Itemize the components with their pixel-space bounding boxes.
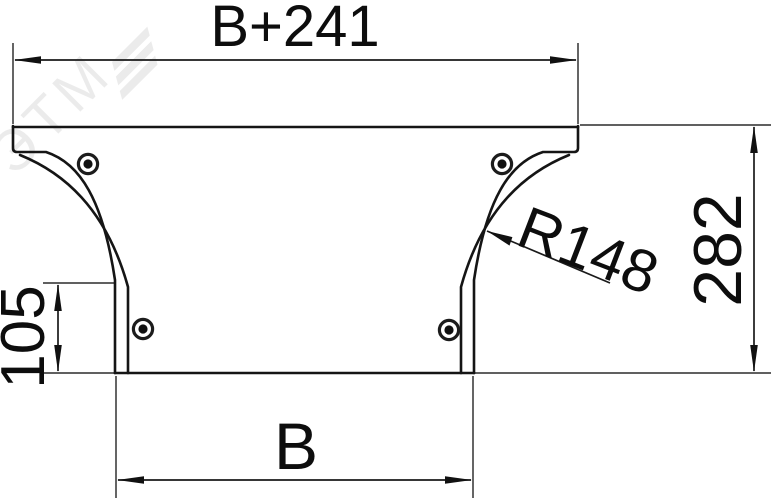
rivet-icon [439, 320, 458, 339]
radius-callout: R148 [487, 194, 667, 308]
rivet-icon [78, 154, 97, 173]
rivet-icon [133, 319, 152, 338]
dimension-label-top-width: B+241 [210, 0, 379, 59]
arrowhead-right-icon [550, 56, 577, 64]
arrowhead-radius-icon [487, 231, 512, 246]
dimension-label-bottom-width: B [274, 409, 318, 483]
watermark-text: ЭТМ [0, 40, 125, 187]
arrowhead-left-icon [117, 476, 144, 484]
rivets [78, 154, 511, 339]
dimension-overall-height: 282 [680, 126, 758, 372]
dimension-bottom-width: B [117, 409, 472, 484]
arrowhead-left-icon [14, 56, 41, 64]
dimension-top-width: B+241 [14, 0, 577, 64]
cable-tray-tee-drawing: ЭТМ [0, 0, 781, 500]
technical-drawing-canvas: ЭТМ [0, 0, 781, 500]
dimension-side-offset: 105 [0, 284, 62, 389]
rivet-icon [492, 154, 511, 173]
arrowhead-up-icon [750, 126, 758, 153]
arrowhead-down-icon [750, 345, 758, 372]
dimension-label-radius: R148 [509, 194, 667, 308]
arrowhead-right-icon [445, 476, 472, 484]
dimension-label-overall-height: 282 [680, 193, 756, 306]
dimension-label-side-offset: 105 [0, 285, 58, 388]
